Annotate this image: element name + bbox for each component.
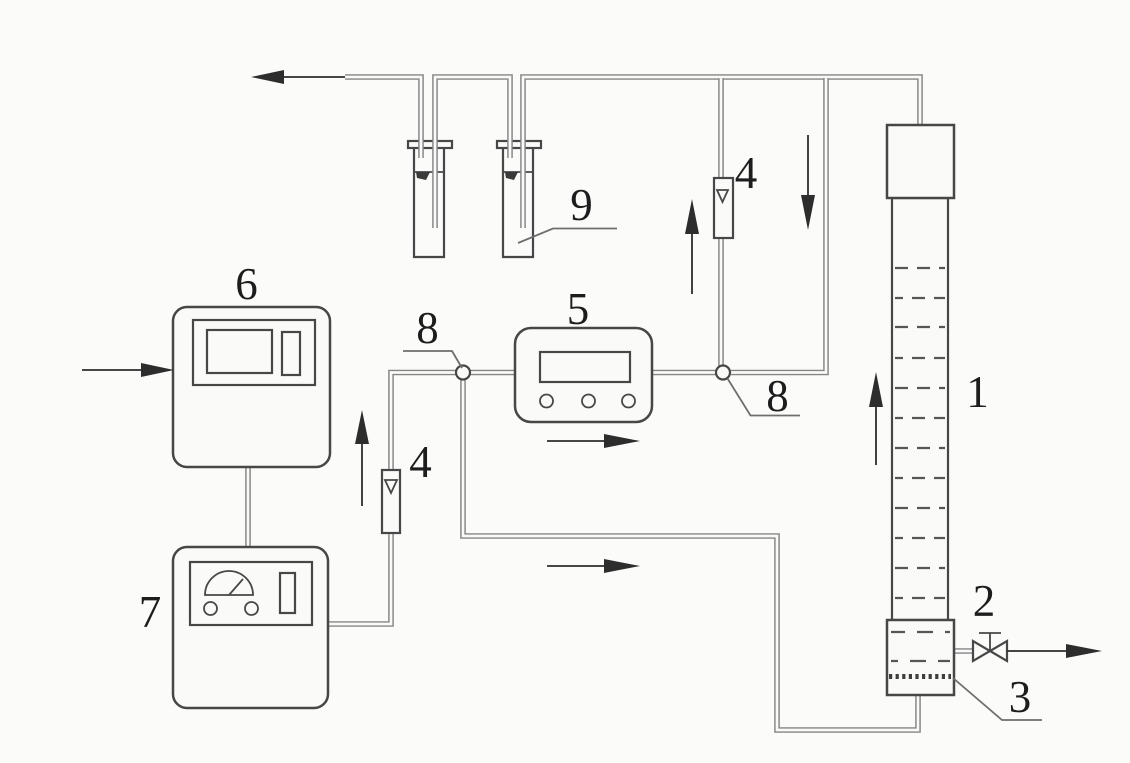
rotameter-right bbox=[714, 178, 733, 238]
label-valve: 2 bbox=[973, 576, 996, 626]
inline-meter-box bbox=[515, 328, 652, 422]
label-flowmeter-left: 4 bbox=[409, 437, 432, 487]
label-controller: 6 bbox=[235, 259, 258, 309]
column-body bbox=[892, 198, 948, 620]
tee-junction-left bbox=[456, 366, 470, 380]
label-junction-left: 8 bbox=[416, 303, 439, 353]
controller-box bbox=[173, 307, 330, 467]
label-bottles: 9 bbox=[570, 180, 593, 230]
power-housing bbox=[173, 547, 328, 708]
process-flow-diagram: 1 2 3 4 4 5 6 7 8 8 9 bbox=[0, 0, 1130, 763]
label-junction-right: 8 bbox=[766, 371, 789, 421]
packed-column bbox=[887, 125, 954, 695]
rotameter-left bbox=[382, 470, 400, 533]
rotameter-body bbox=[714, 178, 733, 238]
power-meter-box bbox=[173, 547, 328, 708]
bottle-stopper bbox=[497, 141, 541, 148]
label-column: 1 bbox=[966, 367, 989, 417]
label-flowmeter-right: 4 bbox=[735, 148, 758, 198]
tee-junction-right bbox=[716, 366, 730, 380]
meter-housing bbox=[515, 328, 652, 422]
column-top-cap bbox=[887, 125, 954, 198]
bottle-stopper bbox=[408, 141, 452, 148]
label-power-unit: 7 bbox=[139, 587, 162, 637]
label-meter: 5 bbox=[567, 284, 590, 334]
label-distributor: 3 bbox=[1009, 672, 1032, 722]
